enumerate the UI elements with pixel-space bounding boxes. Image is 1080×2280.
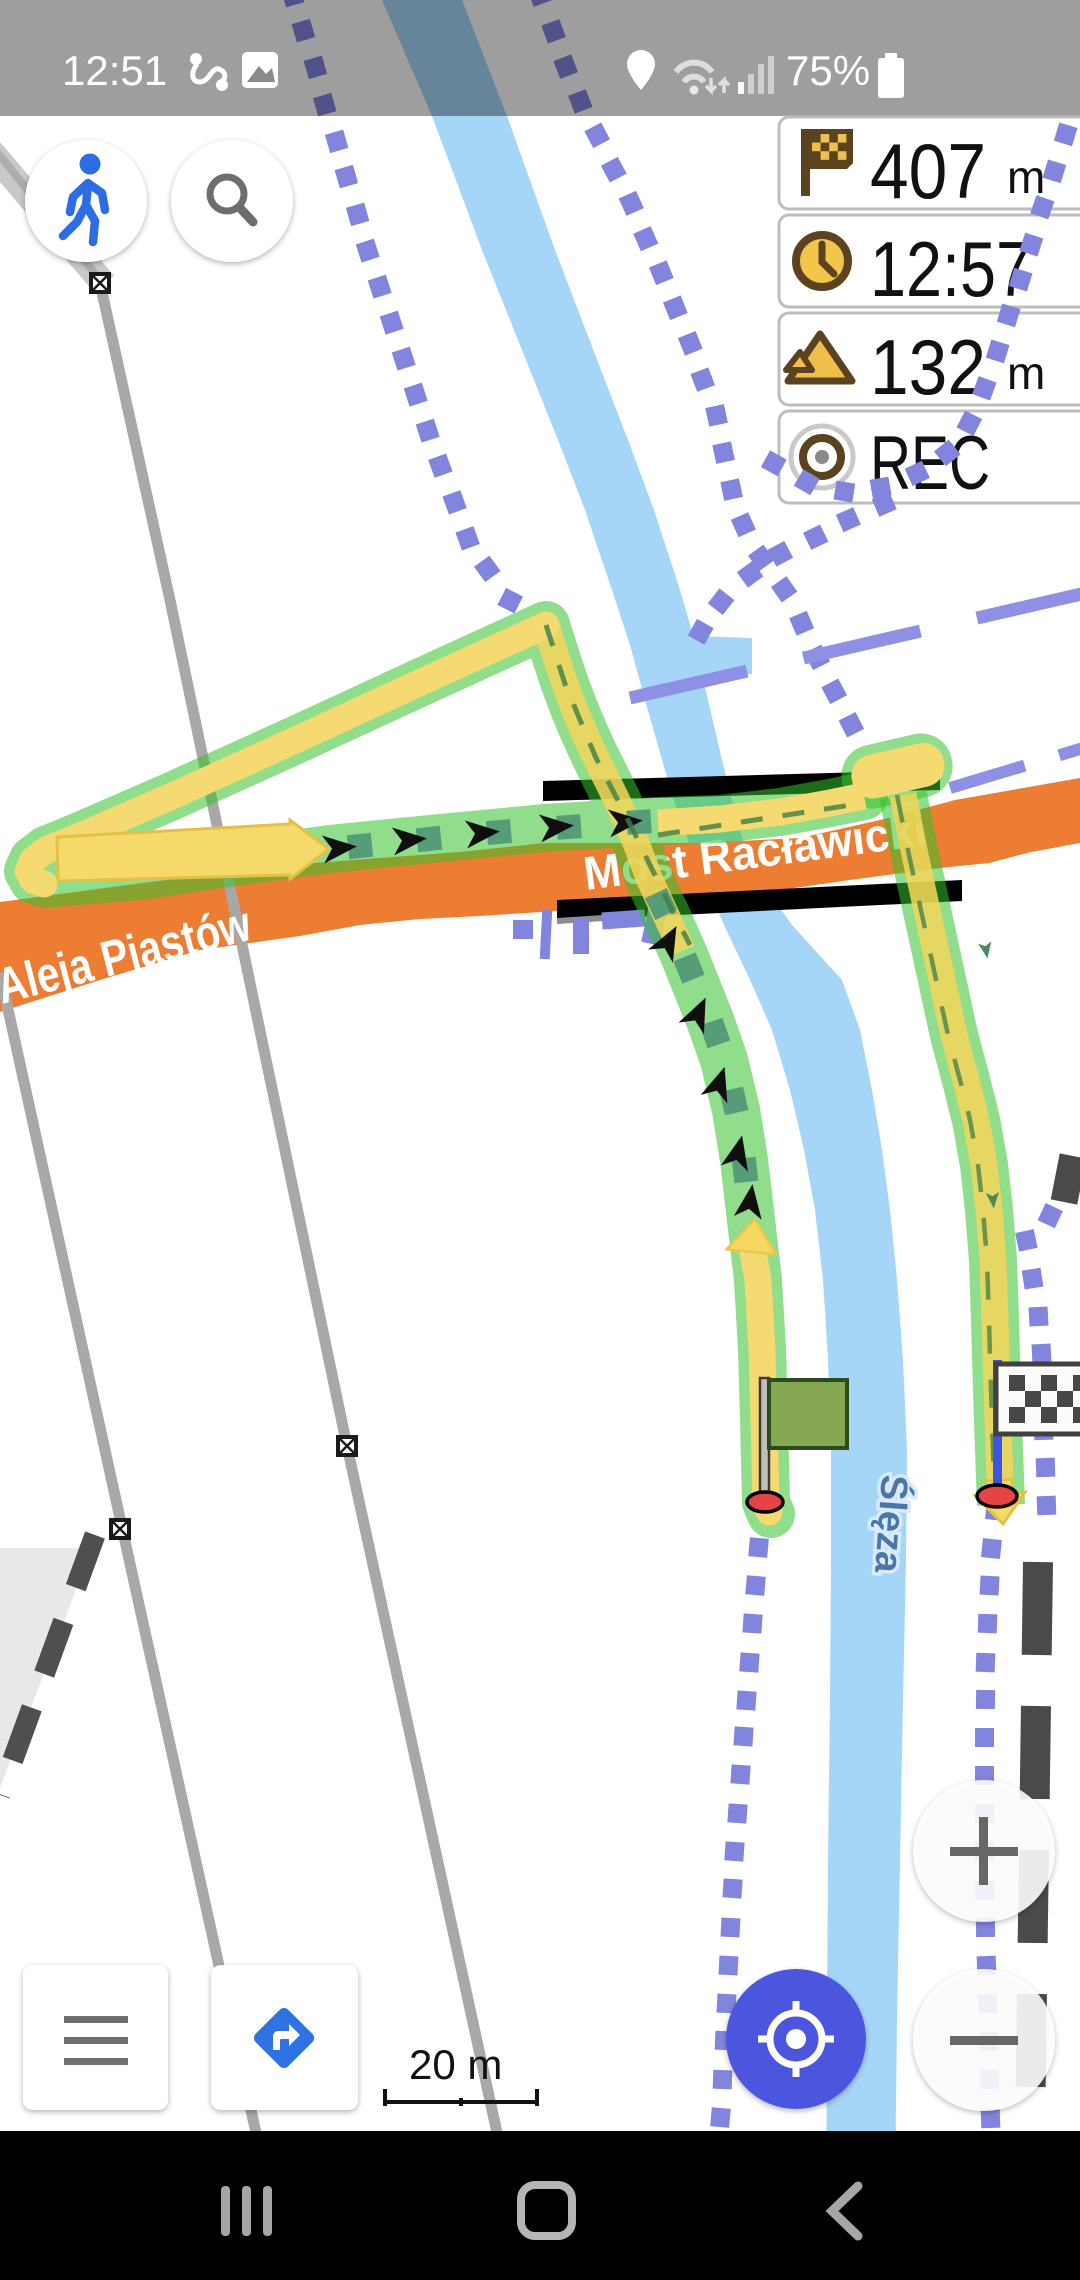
svg-text:75%: 75% — [786, 47, 870, 94]
svg-text:Ślęza: Ślęza — [866, 1473, 917, 1575]
svg-text:20 m: 20 m — [409, 2041, 502, 2088]
svg-text:132: 132 — [870, 323, 986, 411]
svg-text:12:57: 12:57 — [870, 225, 1032, 313]
svg-text:m: m — [1007, 151, 1045, 203]
svg-text:12:51: 12:51 — [62, 47, 167, 94]
svg-text:m: m — [1007, 347, 1045, 399]
svg-text:407: 407 — [870, 127, 986, 215]
